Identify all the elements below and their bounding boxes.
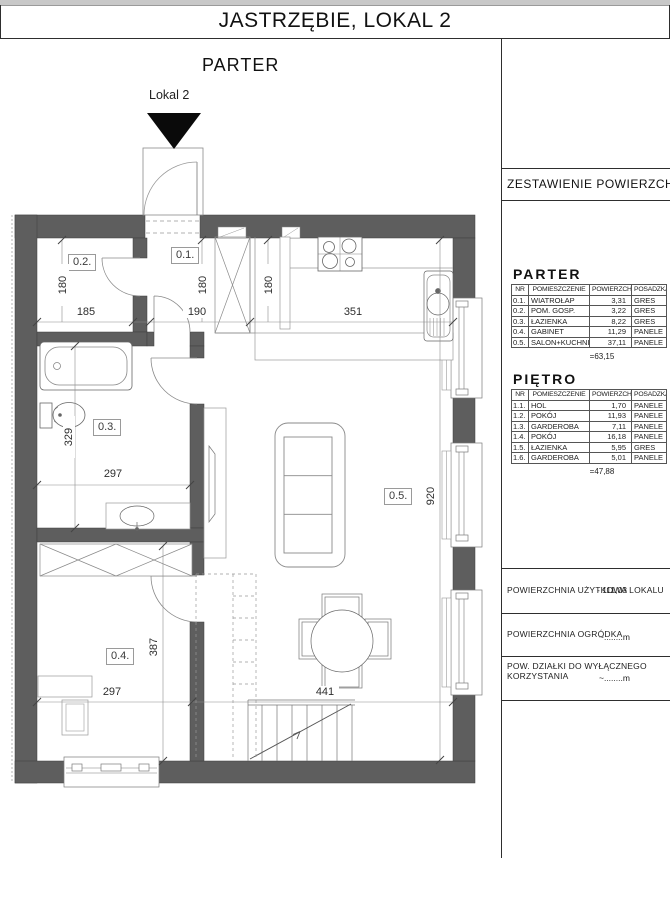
stove-icon (318, 237, 362, 271)
table-row: 0.4.GABINET 11,29PANELE (512, 327, 667, 338)
dim-387: 387 (148, 626, 160, 668)
tv-cabinet-icon (204, 408, 226, 558)
entrance-arrow-icon (147, 113, 201, 149)
dim-180-wiatrolap: 180 (197, 264, 209, 306)
summary-value-plot: ~........m (599, 673, 630, 683)
table-row: 1.5.ŁAZIENKA 5,95GRES (512, 442, 667, 453)
door-bathroom (151, 358, 197, 404)
col-header: POSADZKA (632, 390, 667, 401)
dim-441: 441 (311, 686, 339, 698)
washbasin-icon (106, 503, 190, 531)
dim-180-kitchen: 180 (263, 264, 275, 306)
window-bottom (64, 757, 159, 787)
area-table-pietro: NR POMIESZCZENIE POWIERZCHNIA POSADZKA 1… (511, 389, 667, 464)
door-room-02 (102, 258, 140, 296)
kitchen-sink-icon (424, 271, 453, 341)
panel-line-2 (501, 200, 670, 201)
col-header: POWIERZCHNIA (590, 285, 632, 296)
window-right-1 (451, 298, 482, 398)
table-row: 1.6.GARDEROBA 5,01PANELE (512, 453, 667, 464)
col-header: NR (512, 285, 529, 296)
room-label-0-1: 0.1. (171, 247, 199, 264)
dim-351: 351 (339, 306, 367, 318)
table-row: 1.4.POKÓJ 16,18PANELE (512, 432, 667, 443)
dining-set-icon (299, 594, 391, 688)
window-right-2 (451, 443, 482, 547)
dim-297-office: 297 (98, 686, 126, 698)
summary-line-3 (501, 656, 670, 657)
room-label-0-3: 0.3. (93, 419, 121, 436)
panel-line-1 (501, 168, 670, 169)
section-heading-parter: PARTER (513, 266, 582, 282)
table-row: 0.5.SALON+KUCHNIA 37,11PANELE (512, 337, 667, 348)
panel-divider (501, 38, 502, 858)
table-row: 0.2.POM. GOSP. 3,22GRES (512, 306, 667, 317)
dim-190: 190 (183, 306, 211, 318)
room-label-0-5: 0.5. (384, 488, 412, 505)
entrance-porch (143, 148, 203, 233)
sofa-icon (275, 423, 345, 567)
bathtub-icon (40, 342, 132, 390)
radiators (442, 306, 451, 687)
col-header: POMIESZCZENIE (529, 285, 590, 296)
closet-icon (215, 237, 255, 333)
table-row: 1.1.HOL 1,70PANELE (512, 400, 667, 411)
room-label-0-2: 0.2. (68, 254, 96, 271)
table-row: 0.1.WIATROŁAP 3,31GRES (512, 295, 667, 306)
total-parter: =63,15 (577, 352, 627, 361)
drawing-sheet: JASTRZĘBIE, LOKAL 2 PARTER Lokal 2 (0, 0, 670, 902)
door-room-04 (151, 576, 197, 622)
wardrobe-icon (40, 544, 192, 576)
col-header: POSADZKA (632, 285, 667, 296)
table-row: 1.2.POKÓJ 11,93PANELE (512, 411, 667, 422)
dim-329: 329 (63, 416, 75, 458)
col-header: NR (512, 390, 529, 401)
summary-value-usable-area: - 111,03 (597, 585, 627, 595)
table-row: 1.3.GARDEROBA 7,11PANELE (512, 421, 667, 432)
area-table-parter: NR POMIESZCZENIE POWIERZCHNIA POSADZKA 0… (511, 284, 667, 348)
col-header: POWIERZCHNIA (590, 390, 632, 401)
summary-label-plot-2: KORZYSTANIA (507, 671, 569, 681)
window-right-3 (451, 590, 482, 695)
summary-label-usable-area: POWIERZCHNIA UŻYTKOWA LOKALU (507, 585, 664, 595)
dim-180-pomgosp: 180 (57, 264, 69, 306)
section-heading-pietro: PIĘTRO (513, 371, 577, 387)
summary-line-1 (501, 568, 670, 569)
table-row: 0.3.ŁAZIENKA 8,22GRES (512, 316, 667, 327)
summary-line-4 (501, 700, 670, 701)
summary-value-garden: ~........m (599, 632, 630, 642)
dim-297-bathroom: 297 (99, 468, 127, 480)
panel-title: ZESTAWIENIE POWIERZCHNI (507, 177, 670, 191)
col-header: POMIESZCZENIE (529, 390, 590, 401)
dim-920: 920 (425, 475, 437, 517)
desk-icon (38, 676, 92, 735)
dim-185: 185 (72, 306, 100, 318)
summary-label-plot-1: POW. DZIAŁKI DO WYŁĄCZNEGO (507, 661, 647, 671)
total-pietro: =47,88 (577, 467, 627, 476)
summary-line-2 (501, 613, 670, 614)
room-label-0-4: 0.4. (106, 648, 134, 665)
